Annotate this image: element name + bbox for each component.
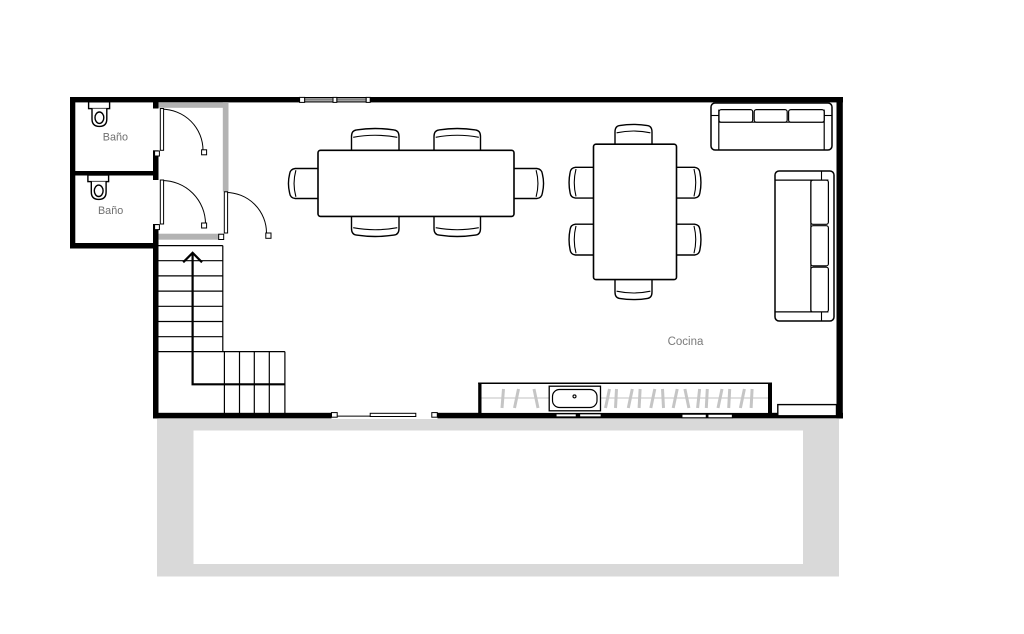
svg-text:Baño: Baño: [98, 205, 123, 217]
svg-text:Baño: Baño: [103, 131, 128, 143]
svg-text:Cocina: Cocina: [668, 336, 704, 348]
